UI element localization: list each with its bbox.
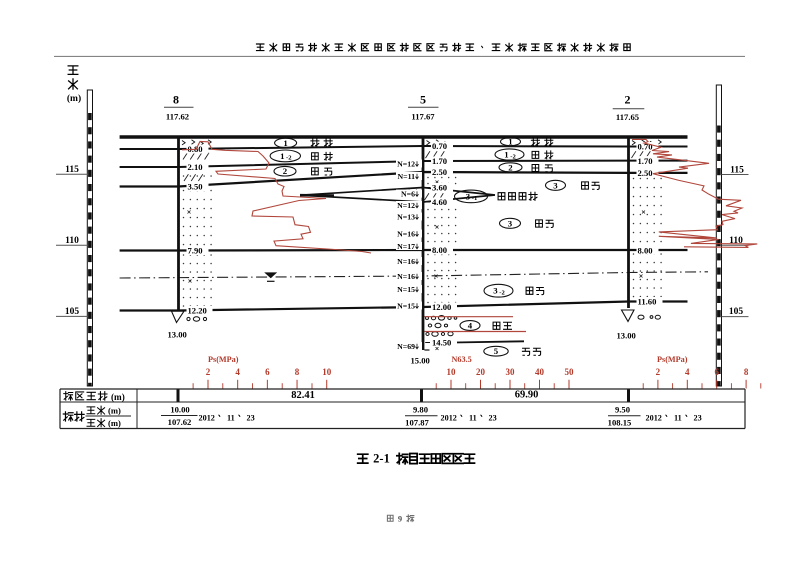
svg-text:N=16: N=16 <box>397 272 415 281</box>
svg-text:N=12: N=12 <box>397 201 415 210</box>
svg-text:110: 110 <box>65 236 79 246</box>
svg-text:N=6: N=6 <box>401 189 415 198</box>
svg-text:40: 40 <box>535 367 545 377</box>
svg-text:Ps(MPa): Ps(MPa) <box>208 355 239 364</box>
svg-text:30: 30 <box>506 367 516 377</box>
svg-text:110: 110 <box>729 236 743 246</box>
svg-text:23: 23 <box>247 413 255 422</box>
svg-text:2.10: 2.10 <box>188 162 203 172</box>
svg-text:(m): (m) <box>108 418 121 428</box>
svg-text:115: 115 <box>65 165 79 175</box>
svg-text:2: 2 <box>656 367 661 377</box>
svg-text:5: 5 <box>494 346 499 356</box>
svg-text:(m): (m) <box>108 405 121 415</box>
svg-text:3.60: 3.60 <box>432 183 447 193</box>
svg-text:12.20: 12.20 <box>188 306 207 316</box>
svg-text:7.90: 7.90 <box>188 246 203 256</box>
svg-text:N=16: N=16 <box>397 257 415 266</box>
svg-text:N=15: N=15 <box>397 285 415 294</box>
svg-text:1.70: 1.70 <box>432 156 447 166</box>
svg-text:108.15: 108.15 <box>608 417 632 427</box>
svg-text:105: 105 <box>729 307 744 317</box>
svg-text:(m): (m) <box>111 392 125 402</box>
svg-text:6: 6 <box>265 367 270 377</box>
svg-text:10: 10 <box>447 367 457 377</box>
svg-text:2: 2 <box>508 162 513 172</box>
svg-text:10: 10 <box>322 367 332 377</box>
svg-text:-2: -2 <box>510 153 516 160</box>
svg-text:N=16: N=16 <box>397 229 415 238</box>
svg-text:1.70: 1.70 <box>638 156 653 166</box>
svg-text:2: 2 <box>283 166 288 176</box>
svg-text:20: 20 <box>476 367 486 377</box>
svg-text:117.65: 117.65 <box>616 112 639 122</box>
svg-text:3: 3 <box>466 191 471 201</box>
svg-text:-2: -2 <box>286 155 292 162</box>
svg-text:105: 105 <box>65 307 80 317</box>
svg-text:8: 8 <box>744 367 749 377</box>
svg-text:2-1: 2-1 <box>373 452 390 466</box>
svg-text:117.62: 117.62 <box>166 112 189 122</box>
svg-text:15.00: 15.00 <box>411 356 430 366</box>
svg-text:2012: 2012 <box>199 413 215 422</box>
svg-text:3: 3 <box>508 218 513 228</box>
svg-text:N=17: N=17 <box>397 242 415 251</box>
svg-text:8.00: 8.00 <box>638 245 653 255</box>
svg-text:14.50: 14.50 <box>432 338 451 348</box>
svg-text:1: 1 <box>283 138 287 148</box>
svg-text:12.00: 12.00 <box>432 302 451 312</box>
svg-text:9.50: 9.50 <box>615 404 630 414</box>
svg-text:N=15: N=15 <box>397 301 415 310</box>
svg-text:4: 4 <box>235 367 240 377</box>
svg-text:-1: -1 <box>472 195 478 202</box>
svg-text:11: 11 <box>674 413 682 422</box>
svg-text:9: 9 <box>398 513 402 523</box>
svg-text:2012: 2012 <box>646 413 662 422</box>
svg-text:N=11: N=11 <box>398 172 416 181</box>
svg-text:(m): (m) <box>67 93 81 104</box>
svg-text:3: 3 <box>493 286 498 296</box>
svg-text:10.00: 10.00 <box>170 404 189 414</box>
svg-text:11: 11 <box>469 413 477 422</box>
svg-text:3: 3 <box>553 180 558 190</box>
svg-text:82.41: 82.41 <box>291 390 315 401</box>
svg-text:117.67: 117.67 <box>411 112 435 122</box>
svg-text:6: 6 <box>714 367 719 377</box>
svg-text:13.00: 13.00 <box>617 331 636 341</box>
svg-text:107.87: 107.87 <box>405 417 429 427</box>
svg-text:5: 5 <box>420 93 426 107</box>
svg-text:8: 8 <box>173 93 179 107</box>
svg-text:2: 2 <box>206 367 211 377</box>
svg-text:2.50: 2.50 <box>432 167 447 177</box>
svg-text:4.60: 4.60 <box>432 197 447 207</box>
svg-text:Ps(MPa): Ps(MPa) <box>657 355 688 364</box>
svg-text:2012: 2012 <box>441 413 457 422</box>
svg-text:8.00: 8.00 <box>432 245 447 255</box>
svg-text:1: 1 <box>280 151 284 161</box>
svg-text:1: 1 <box>508 137 512 147</box>
svg-text:4: 4 <box>685 367 690 377</box>
svg-text:9.80: 9.80 <box>413 404 428 414</box>
svg-text:107.62: 107.62 <box>168 417 192 427</box>
svg-text:N63.5: N63.5 <box>452 355 472 364</box>
svg-text:69.90: 69.90 <box>515 390 539 401</box>
svg-text:N=12: N=12 <box>397 159 415 168</box>
svg-text:50: 50 <box>565 367 575 377</box>
svg-text:1: 1 <box>504 150 508 160</box>
svg-text:3.50: 3.50 <box>188 182 203 192</box>
svg-text:11: 11 <box>227 413 235 422</box>
svg-text:N=13: N=13 <box>397 212 415 221</box>
svg-text:13.00: 13.00 <box>168 330 187 340</box>
svg-text:2: 2 <box>625 93 631 107</box>
svg-text:4: 4 <box>468 321 473 331</box>
svg-text:23: 23 <box>694 413 702 422</box>
svg-text:N=69: N=69 <box>397 342 415 351</box>
svg-text:2.50: 2.50 <box>638 168 653 178</box>
svg-text:0.70: 0.70 <box>432 141 447 151</box>
svg-text:23: 23 <box>489 413 497 422</box>
svg-text:11.60: 11.60 <box>638 297 657 307</box>
svg-text:-2: -2 <box>499 290 505 297</box>
svg-text:8: 8 <box>295 367 300 377</box>
